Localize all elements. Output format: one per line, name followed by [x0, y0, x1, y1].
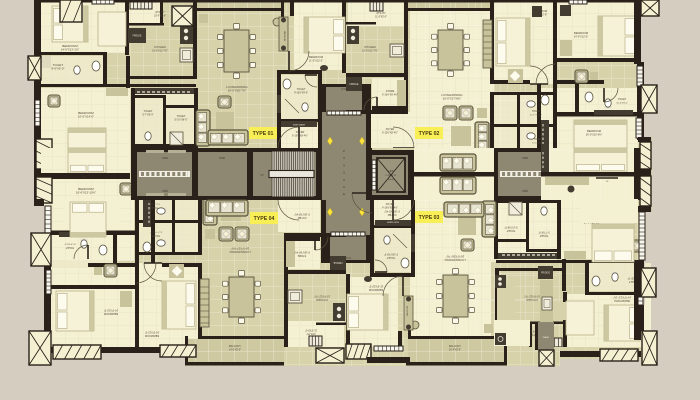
svg-text:10′-6″X12′-7½″: 10′-6″X12′-7½″ [152, 48, 168, 52]
svg-text:VOID: VOID [522, 157, 528, 160]
svg-text:WASH: WASH [543, 336, 550, 339]
svg-text:FOYER: FOYER [386, 203, 395, 206]
svg-text:A: A [343, 178, 345, 182]
svg-text:TYPE 01: TYPE 01 [253, 131, 274, 137]
svg-text:16′-4″X5′-0″: 16′-4″X5′-0″ [449, 349, 461, 351]
svg-text:VOID: VOID [162, 190, 168, 193]
svg-text:11′-0″X5′-0″: 11′-0″X5′-0″ [375, 16, 387, 18]
svg-text:8′-0″X5′-0″: 8′-0″X5′-0″ [52, 66, 65, 70]
svg-text:16′-6″X13′-10½″: 16′-6″X13′-10½″ [76, 190, 96, 194]
svg-text:TOILET: TOILET [618, 98, 627, 101]
svg-text:14′-0″X12′-0″: 14′-0″X12′-0″ [574, 35, 588, 38]
svg-text:LIFT: LIFT [389, 170, 394, 173]
svg-text:KITCHEN: KITCHEN [364, 45, 376, 49]
svg-text:VOID: VOID [219, 157, 225, 160]
svg-text:TYPE 04: TYPE 04 [254, 216, 275, 222]
svg-text:16′-0″X10′-6½″: 16′-0″X10′-6½″ [586, 132, 603, 136]
svg-text:VOID: VOID [522, 190, 528, 193]
svg-text:10′-0″X5′-0″: 10′-0″X5′-0″ [616, 102, 628, 104]
svg-text:S: S [343, 163, 345, 167]
svg-text:E: E [343, 192, 345, 196]
svg-text:VOID: VOID [162, 157, 168, 160]
svg-text:FOYER: FOYER [296, 131, 305, 134]
svg-text:G: G [343, 185, 345, 189]
svg-text:KITCHEN: KITCHEN [154, 45, 166, 49]
svg-text:P: P [343, 149, 345, 153]
svg-text:STORE: STORE [386, 90, 395, 93]
svg-text:BEDROOM: BEDROOM [587, 129, 602, 133]
svg-text:WARDROBE: WARDROBE [283, 31, 286, 42]
svg-text:(clear): (clear) [388, 178, 394, 181]
svg-text:BALCONY: BALCONY [449, 345, 461, 348]
svg-text:SIDE WASH: SIDE WASH [293, 124, 306, 127]
svg-text:10′-9″X3′-6″: 10′-9″X3′-6″ [154, 15, 166, 17]
svg-text:14′-0″X13′-1½″: 14′-0″X13′-1½″ [61, 47, 79, 51]
svg-text:BEDROOM: BEDROOM [309, 55, 324, 59]
svg-text:16′-0″X26′-7½″: 16′-0″X26′-7½″ [228, 88, 246, 92]
svg-text:10′-6″X12′-7½″: 10′-6″X12′-7½″ [362, 48, 378, 52]
svg-text:FOYER: FOYER [386, 128, 395, 131]
svg-text:TOILET: TOILET [532, 110, 541, 113]
svg-text:UTILITY: UTILITY [155, 11, 165, 14]
svg-text:5′-7″X8′-0″: 5′-7″X8′-0″ [142, 113, 153, 116]
svg-text:FRIDGE: FRIDGE [132, 35, 141, 38]
svg-text:FRIDGE: FRIDGE [349, 83, 358, 86]
svg-text:BEDROOM: BEDROOM [574, 31, 589, 35]
svg-text:14′-0″X5′-0″: 14′-0″X5′-0″ [229, 349, 241, 351]
svg-text:TYPE 03: TYPE 03 [419, 215, 440, 221]
svg-text:TYPE 02: TYPE 02 [419, 131, 440, 137]
svg-text:TOILET: TOILET [143, 109, 152, 113]
svg-text:5′-10″X4′-11″: 5′-10″X4′-11″ [386, 175, 397, 177]
svg-text:A: A [343, 156, 345, 160]
svg-text:S: S [343, 171, 345, 175]
svg-text:5′-1½″X8′-0″: 5′-1½″X8′-0″ [174, 117, 187, 121]
svg-text:UP: UP [260, 173, 264, 177]
svg-text:16′-0″X27′-8½″: 16′-0″X27′-8½″ [443, 96, 461, 100]
svg-text:BALCONY: BALCONY [229, 345, 241, 348]
svg-text:UTILITY: UTILITY [376, 12, 386, 15]
svg-text:TOILET: TOILET [297, 88, 306, 91]
svg-text:11′-3″X12′-2″: 11′-3″X12′-2″ [309, 59, 323, 62]
svg-text:FRIDGE: FRIDGE [541, 272, 550, 275]
svg-text:TOILET: TOILET [176, 114, 185, 118]
svg-text:16′-0″X14′-0″: 16′-0″X14′-0″ [78, 114, 94, 118]
